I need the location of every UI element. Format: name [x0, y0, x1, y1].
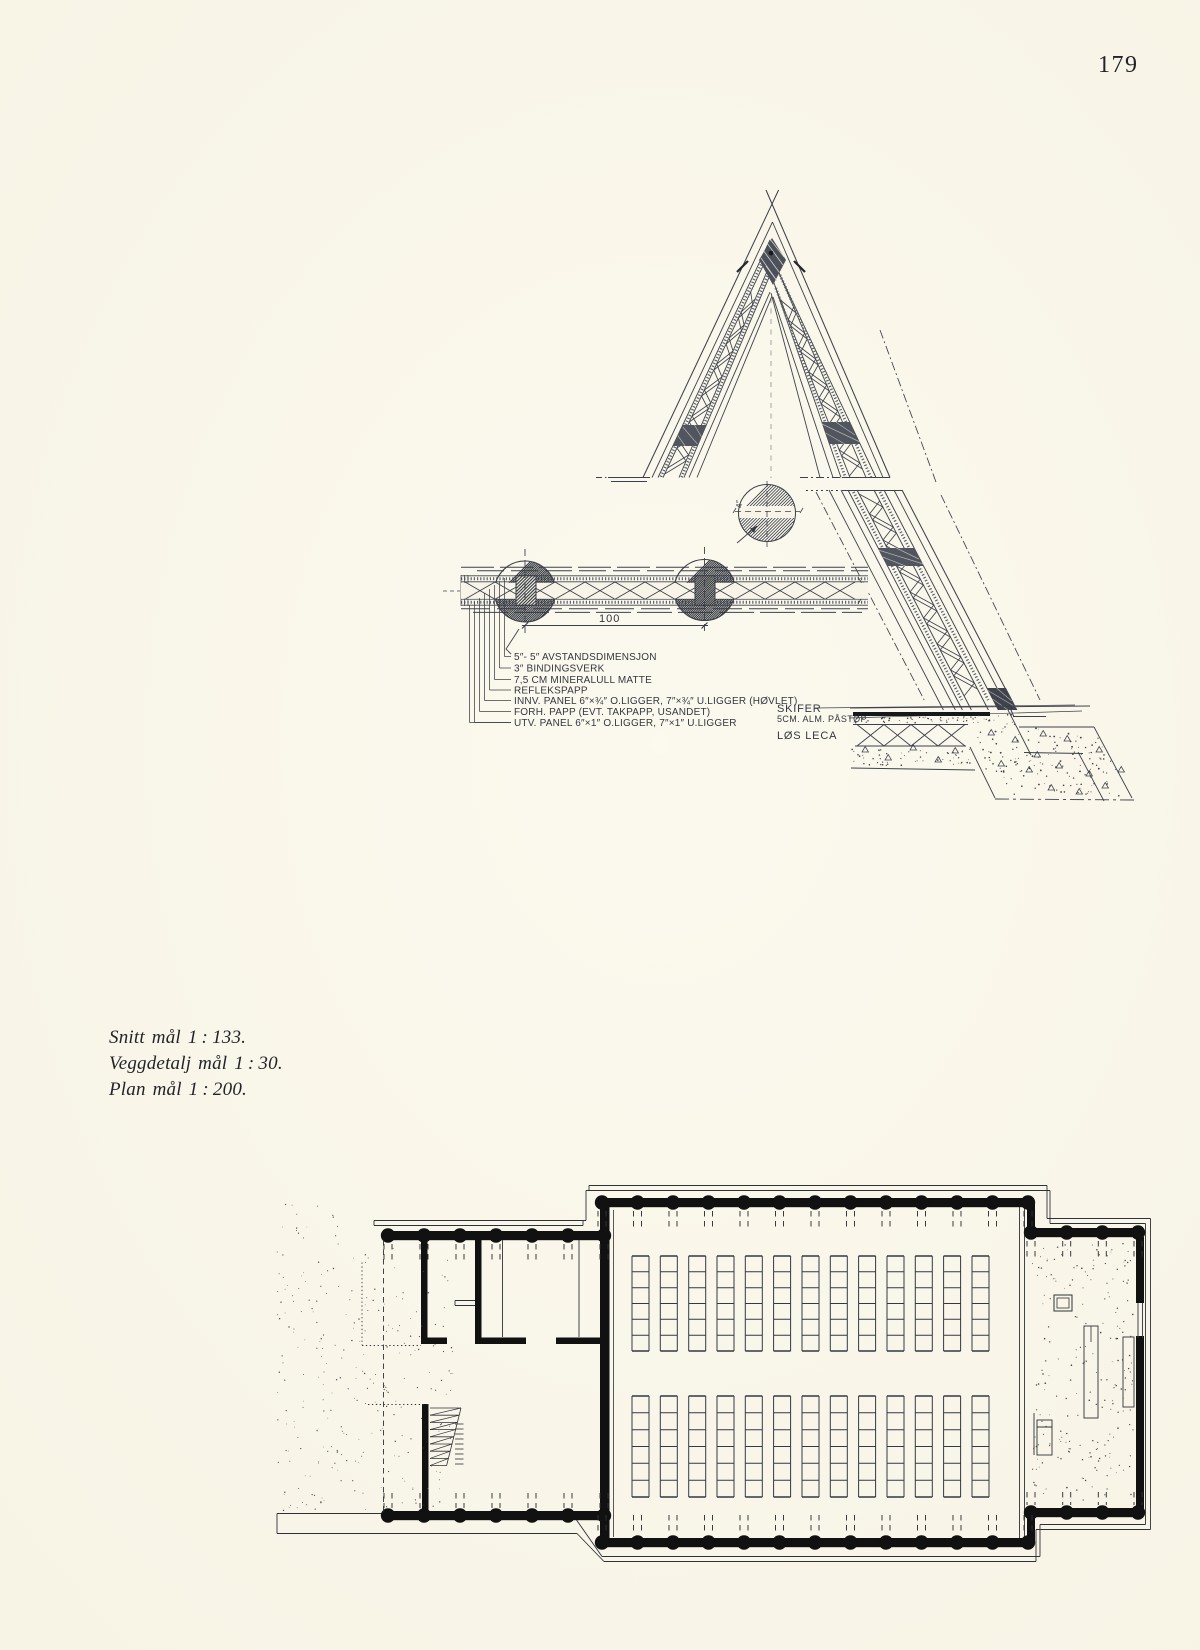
- svg-text:3″ BINDINGSVERK: 3″ BINDINGSVERK: [514, 664, 605, 675]
- svg-text:LØS LECA: LØS LECA: [777, 730, 837, 742]
- svg-text:INNV. PANEL 6″×¾″ O.LIGGER, 7″: INNV. PANEL 6″×¾″ O.LIGGER, 7″×¾″ U.LIGG…: [514, 696, 798, 707]
- svg-text:FORH. PAPP (EVT. TAKPAPP, USAN: FORH. PAPP (EVT. TAKPAPP, USANDET): [514, 707, 710, 718]
- svg-text:100: 100: [599, 613, 620, 625]
- svg-text:4″: 4″: [735, 500, 744, 508]
- svg-text:REFLEKSPAPP: REFLEKSPAPP: [514, 686, 588, 697]
- svg-text:5″- 5″ AVSTANDSDIMENSJON: 5″- 5″ AVSTANDSDIMENSJON: [514, 652, 657, 663]
- svg-text:UTV. PANEL 6″×1″ O.LIGGER, 7″×: UTV. PANEL 6″×1″ O.LIGGER, 7″×1″ U.LIGGE…: [514, 718, 737, 729]
- svg-text:7,5 CM MINERALULL MATTE: 7,5 CM MINERALULL MATTE: [514, 675, 652, 686]
